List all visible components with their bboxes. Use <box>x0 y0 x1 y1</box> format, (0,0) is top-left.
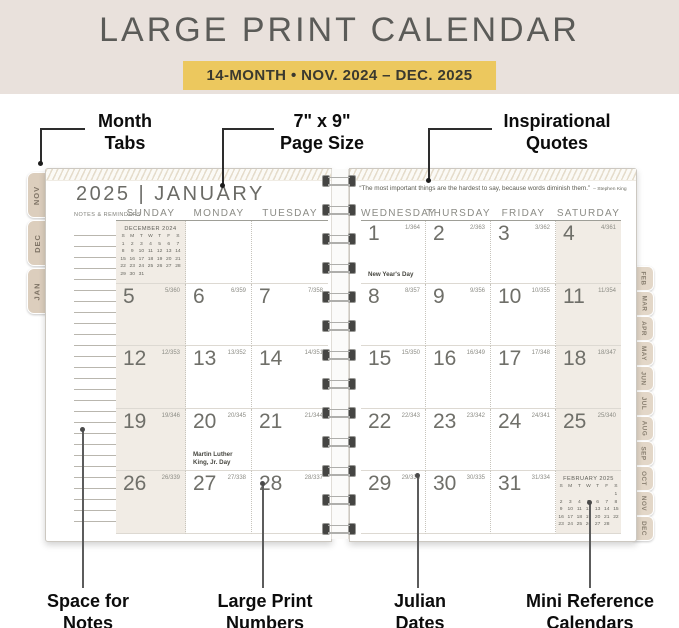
spiral-loop <box>322 204 356 216</box>
large-print-callout-line <box>262 484 264 588</box>
day-cell: 22/363 <box>426 221 491 284</box>
spiral-wire <box>328 467 350 469</box>
day-cell: 1414/351 <box>252 346 328 409</box>
month-tab-dec[interactable]: DEC <box>27 220 47 266</box>
spiral-loop <box>322 320 356 332</box>
quotes-callout-line <box>428 128 430 180</box>
day-cell: 55/360 <box>116 284 186 347</box>
julian-date: 7/358 <box>308 288 323 294</box>
day-cell: 1616/349 <box>426 346 491 409</box>
day-number: 19 <box>123 410 146 433</box>
day-cell: 2323/342 <box>426 409 491 472</box>
day-header-sunday: SUNDAY <box>116 207 186 221</box>
julian-date: 5/360 <box>165 288 180 294</box>
day-cell: 1212/353 <box>116 346 186 409</box>
day-number: 9 <box>433 285 445 308</box>
spiral-wire <box>328 271 350 273</box>
julian-dates-callout-line <box>417 476 419 588</box>
julian-date: 3/362 <box>535 225 550 231</box>
mini-ref-callout-line <box>589 503 591 588</box>
page-size-callout-line <box>222 128 224 185</box>
day-number: 14 <box>259 347 282 370</box>
day-number: 30 <box>433 472 456 495</box>
decorative-hatch-band <box>350 169 636 181</box>
month-tab-label: APR <box>640 321 647 336</box>
month-tabs-callout-line <box>40 128 42 164</box>
spiral-wire <box>328 184 350 186</box>
spiral-loop <box>322 436 356 448</box>
large-print-callout-dot <box>260 481 265 486</box>
julian-date: 20/345 <box>228 413 246 419</box>
julian-date: 15/350 <box>402 350 420 356</box>
day-cell: 77/358 <box>252 284 328 347</box>
day-number: 4 <box>563 222 575 245</box>
julian-date: 2/363 <box>470 225 485 231</box>
space-notes-callout-dot <box>80 427 85 432</box>
spiral-wire <box>328 358 350 360</box>
day-number: 31 <box>498 472 521 495</box>
month-tab-label: FEB <box>640 271 647 285</box>
page-size-callout-line <box>222 128 274 130</box>
spiral-wire <box>328 474 350 476</box>
julian-date: 17/348 <box>532 350 550 356</box>
spiral-wire <box>328 235 350 237</box>
julian-date: 1/364 <box>405 225 420 231</box>
day-number: 27 <box>193 472 216 495</box>
inspirational-quote: “The most important things are the harde… <box>350 185 636 192</box>
callout-line-1: Space for <box>33 591 143 613</box>
spiral-wire <box>328 206 350 208</box>
product-diagram: LARGE PRINT CALENDAR 14-MONTH • NOV. 202… <box>0 0 679 628</box>
day-cell: 2121/344 <box>252 409 328 472</box>
spiral-loop <box>322 494 356 506</box>
callout-line-2: Numbers <box>200 613 330 628</box>
day-number: 23 <box>433 410 456 433</box>
day-cell: 1010/355 <box>491 284 556 347</box>
julian-date: 26/339 <box>162 475 180 481</box>
quotes-callout-dot <box>426 178 431 183</box>
mini-ref-callout-dot <box>587 500 592 505</box>
spiral-wire <box>328 445 350 447</box>
day-number: 8 <box>368 285 380 308</box>
right-day-grid: WEDNESDAYTHURSDAYFRIDAYSATURDAY11/364New… <box>361 207 621 534</box>
julian-date: 4/361 <box>601 225 616 231</box>
day-number: 1 <box>368 222 380 245</box>
day-cell: 1515/350 <box>361 346 426 409</box>
julian-date: 14/351 <box>305 350 323 356</box>
spiral-wire <box>328 177 350 179</box>
month-tabs-callout-dot <box>38 161 43 166</box>
spiral-wire <box>328 300 350 302</box>
spiral-wire <box>328 525 350 527</box>
day-number: 20 <box>193 410 216 433</box>
julian-dates-callout-dot <box>415 473 420 478</box>
julian-date: 31/334 <box>532 475 550 481</box>
month-tab-label: OCT <box>640 471 647 486</box>
left-day-grid: SUNDAYMONDAYTUESDAYDECEMBER 2024SMTWTFS1… <box>116 207 328 534</box>
quotes-callout-line <box>428 128 492 130</box>
holiday-label: Martin Luther King, Jr. Day <box>193 451 241 468</box>
day-number: 11 <box>563 285 585 308</box>
day-number: 26 <box>123 472 146 495</box>
spiral-wire <box>328 380 350 382</box>
day-cell: 2222/343 <box>361 409 426 472</box>
day-number: 12 <box>123 347 146 370</box>
spiral-loop <box>322 291 356 303</box>
spiral-wire <box>328 409 350 411</box>
julian-date: 16/349 <box>467 350 485 356</box>
spiral-wire <box>328 293 350 295</box>
mini-calendar-grid: SMTWTFS123456789101112131415161718192021… <box>119 233 183 279</box>
day-header-thursday: THURSDAY <box>426 207 491 221</box>
julian-date: 27/338 <box>228 475 246 481</box>
julian-date: 13/352 <box>228 350 246 356</box>
decorative-hatch-band <box>46 169 331 181</box>
month-tab-label: JUN <box>640 371 647 385</box>
day-cell: 1717/348 <box>491 346 556 409</box>
spiral-wire <box>328 213 350 215</box>
callout-inspirational-quotes: Inspirational Quotes <box>490 111 624 155</box>
month-tab-label: MAR <box>640 296 647 312</box>
callout-line-1: Month <box>80 111 170 133</box>
product-title: LARGE PRINT CALENDAR <box>0 11 679 50</box>
day-number: 2 <box>433 222 445 245</box>
day-number: 18 <box>563 347 586 370</box>
julian-date: 22/343 <box>402 413 420 419</box>
day-number: 29 <box>368 472 391 495</box>
spiral-wire <box>328 416 350 418</box>
spiral-wire <box>328 329 350 331</box>
spiral-loop <box>322 175 356 187</box>
callout-space-for-notes: Space for Notes <box>33 591 143 628</box>
day-header-wednesday: WEDNESDAY <box>361 207 426 221</box>
julian-date: 24/341 <box>532 413 550 419</box>
day-number: 5 <box>123 285 135 308</box>
space-notes-callout-line <box>82 430 84 588</box>
spiral-loop <box>322 465 356 477</box>
day-cell: 2424/341 <box>491 409 556 472</box>
day-header-friday: FRIDAY <box>491 207 556 221</box>
day-number: 3 <box>498 222 510 245</box>
day-number: 24 <box>498 410 521 433</box>
day-cell: 3030/335 <box>426 471 491 534</box>
julian-date: 19/346 <box>162 413 180 419</box>
day-cell: DECEMBER 2024SMTWTFS12345678910111213141… <box>116 221 186 284</box>
callout-line-1: Inspirational <box>490 111 624 133</box>
julian-date: 28/337 <box>305 475 323 481</box>
day-number: 22 <box>368 410 391 433</box>
page-size-callout-dot <box>220 183 225 188</box>
spiral-wire <box>328 322 350 324</box>
spiral-loop <box>322 523 356 535</box>
notes-ruled-lines <box>74 225 118 524</box>
day-header-saturday: SATURDAY <box>556 207 621 221</box>
day-cell: 1919/346 <box>116 409 186 472</box>
callout-line-2: Tabs <box>80 133 170 155</box>
day-cell: 44/361 <box>556 221 621 284</box>
spiral-loop <box>322 349 356 361</box>
day-cell: 11/364New Year's Day <box>361 221 426 284</box>
callout-line-2: Calendars <box>515 613 665 628</box>
julian-date: 21/344 <box>305 413 323 419</box>
julian-date: 30/335 <box>467 475 485 481</box>
calendar-right-page: “The most important things are the harde… <box>349 168 637 542</box>
callout-line-2: Dates <box>378 613 462 628</box>
day-cell: 1313/352 <box>186 346 252 409</box>
spiral-wire <box>328 532 350 534</box>
spiral-wire <box>328 496 350 498</box>
day-cell: 33/362 <box>491 221 556 284</box>
day-cell <box>252 221 328 284</box>
day-number: 21 <box>259 410 282 433</box>
month-tab-label: DEC <box>33 234 42 253</box>
day-cell: 1111/354 <box>556 284 621 347</box>
spiral-loop <box>322 262 356 274</box>
day-number: 25 <box>563 410 586 433</box>
day-number: 13 <box>193 347 216 370</box>
month-tab-label: AUG <box>640 421 647 437</box>
spiral-wire <box>328 242 350 244</box>
julian-date: 18/347 <box>598 350 616 356</box>
day-cell: 2727/338 <box>186 471 252 534</box>
callout-large-print-numbers: Large Print Numbers <box>200 591 330 628</box>
callout-mini-reference-calendars: Mini Reference Calendars <box>515 591 665 628</box>
spiral-wire <box>328 351 350 353</box>
julian-date: 11/354 <box>598 288 616 294</box>
quote-attribution: – Stephen King <box>593 187 626 192</box>
day-cell: 3131/334 <box>491 471 556 534</box>
day-cell <box>186 221 252 284</box>
callout-line-2: Page Size <box>270 133 374 155</box>
month-tab-nov[interactable]: NOV <box>27 172 47 218</box>
callout-month-tabs: Month Tabs <box>80 111 170 155</box>
spiral-wire <box>328 438 350 440</box>
month-tab-label: NOV <box>640 496 647 511</box>
day-cell: 1818/347 <box>556 346 621 409</box>
spiral-wire <box>328 387 350 389</box>
callout-page-size: 7" x 9" Page Size <box>270 111 374 155</box>
julian-date: 8/357 <box>405 288 420 294</box>
day-cell: 2020/345Martin Luther King, Jr. Day <box>186 409 252 472</box>
quote-text: “The most important things are the harde… <box>359 185 590 192</box>
julian-date: 10/355 <box>532 288 550 294</box>
day-header-monday: MONDAY <box>186 207 252 221</box>
mini-calendar-december: DECEMBER 2024SMTWTFS12345678910111213141… <box>119 226 183 279</box>
spiral-wire <box>328 503 350 505</box>
callout-line-1: Julian <box>378 591 462 613</box>
callout-line-2: Quotes <box>490 133 624 155</box>
holiday-label: New Year's Day <box>368 271 416 279</box>
callout-line-1: 7" x 9" <box>270 111 374 133</box>
mini-calendar-title: FEBRUARY 2025 <box>557 476 621 482</box>
day-number: 10 <box>498 285 521 308</box>
day-number: 6 <box>193 285 205 308</box>
day-cell: 99/356 <box>426 284 491 347</box>
spiral-loop <box>322 233 356 245</box>
day-number: 16 <box>433 347 456 370</box>
calendar-left-page: 2025 | JANUARY NOTES & REMINDERS SUNDAYM… <box>45 168 332 542</box>
month-tab-label: NOV <box>33 185 42 204</box>
julian-date: 9/356 <box>470 288 485 294</box>
julian-date: 25/340 <box>598 413 616 419</box>
day-header-tuesday: TUESDAY <box>252 207 328 221</box>
spiral-loop <box>322 378 356 390</box>
day-cell: 2525/340 <box>556 409 621 472</box>
day-cell: 88/357 <box>361 284 426 347</box>
mini-calendar-title: DECEMBER 2024 <box>119 226 183 232</box>
callout-line-1: Mini Reference <box>515 591 665 613</box>
month-tab-label: DEC <box>640 521 647 536</box>
date-range-banner: 14-MONTH • NOV. 2024 – DEC. 2025 <box>183 61 497 90</box>
month-tab-label: JAN <box>33 282 42 300</box>
callout-line-2: Notes <box>33 613 143 628</box>
day-cell: 66/359 <box>186 284 252 347</box>
callout-julian-dates: Julian Dates <box>378 591 462 628</box>
month-tabs-callout-line <box>40 128 85 130</box>
month-tab-label: JUL <box>640 397 647 410</box>
month-tab-jan[interactable]: JAN <box>27 268 47 314</box>
day-cell: 2626/339 <box>116 471 186 534</box>
julian-date: 23/342 <box>467 413 485 419</box>
spiral-wire <box>328 264 350 266</box>
day-number: 17 <box>498 347 521 370</box>
julian-date: 6/359 <box>231 288 246 294</box>
spiral-loop <box>322 407 356 419</box>
day-number: 15 <box>368 347 391 370</box>
month-tab-label: SEP <box>640 446 647 460</box>
julian-date: 12/353 <box>162 350 180 356</box>
callout-line-1: Large Print <box>200 591 330 613</box>
day-number: 7 <box>259 285 271 308</box>
month-title: 2025 | JANUARY <box>76 183 265 206</box>
month-tab-label: MAY <box>640 346 647 361</box>
